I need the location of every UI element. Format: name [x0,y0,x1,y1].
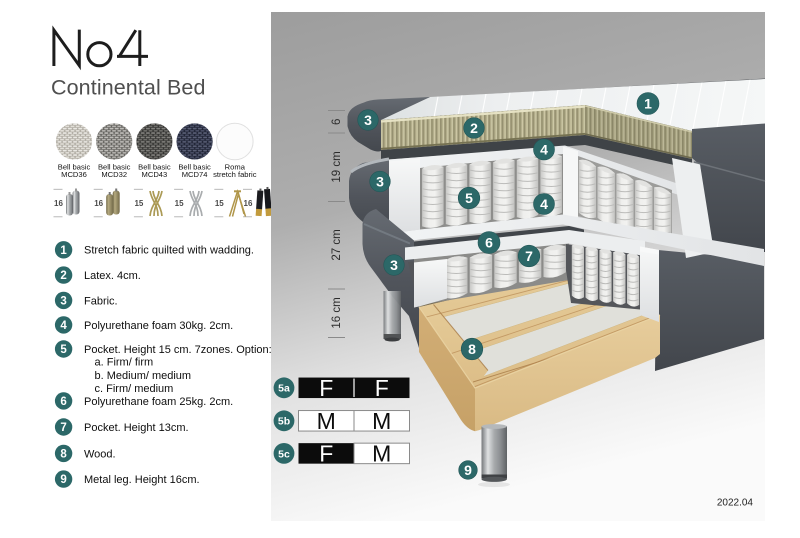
svg-text:Fabric.: Fabric. [84,295,118,307]
svg-text:Polyurethane foam 30kg. 2cm.: Polyurethane foam 30kg. 2cm. [84,320,233,332]
svg-text:Polyurethane foam 25kg. 2cm.: Polyurethane foam 25kg. 2cm. [84,396,233,408]
svg-text:9: 9 [60,474,66,486]
svg-text:16: 16 [244,199,253,208]
svg-text:1: 1 [60,245,67,257]
svg-text:F: F [319,440,333,466]
svg-text:1: 1 [644,96,652,112]
svg-text:stretch fabric: stretch fabric [213,170,257,179]
svg-text:9: 9 [464,462,472,478]
svg-text:a. Firm/ firm: a. Firm/ firm [95,356,154,368]
svg-text:Metal leg. Height 16cm.: Metal leg. Height 16cm. [84,474,200,486]
svg-text:5: 5 [60,344,67,356]
svg-text:MCD32: MCD32 [101,170,127,179]
svg-text:5c: 5c [278,448,290,460]
svg-text:19 cm: 19 cm [331,151,343,182]
svg-text:Continental Bed: Continental Bed [51,76,206,100]
svg-text:Latex. 4cm.: Latex. 4cm. [84,270,141,282]
svg-text:16: 16 [94,199,103,208]
svg-text:F: F [375,375,389,401]
svg-text:6: 6 [485,235,493,251]
svg-text:M: M [317,408,336,434]
svg-text:6: 6 [331,119,343,125]
svg-text:Pocket. Height 13cm.: Pocket. Height 13cm. [84,422,189,434]
svg-text:b. Medium/ medium: b. Medium/ medium [95,370,192,382]
svg-text:Stretch fabric quilted with wa: Stretch fabric quilted with wadding. [84,245,254,257]
svg-text:15: 15 [215,199,224,208]
svg-text:27 cm: 27 cm [331,229,343,260]
svg-text:5a: 5a [278,383,290,395]
svg-text:MCD36: MCD36 [61,170,87,179]
svg-text:Wood.: Wood. [84,448,116,460]
svg-text:3: 3 [376,174,384,190]
svg-text:2022.04: 2022.04 [717,498,754,509]
svg-text:16 cm: 16 cm [331,297,343,328]
svg-text:5: 5 [465,190,473,206]
svg-text:3: 3 [390,257,398,273]
svg-text:c. Firm/ medium: c. Firm/ medium [95,383,174,395]
svg-text:8: 8 [60,449,67,461]
svg-text:MCD43: MCD43 [142,170,168,179]
svg-text:16: 16 [54,199,63,208]
svg-text:4: 4 [540,196,548,212]
svg-text:15: 15 [175,199,184,208]
svg-text:M: M [372,440,391,466]
svg-text:F: F [319,375,333,401]
svg-text:4: 4 [540,142,548,158]
svg-text:8: 8 [468,341,476,357]
svg-text:7: 7 [525,248,533,264]
svg-text:15: 15 [134,199,143,208]
svg-text:2: 2 [60,270,66,282]
svg-text:3: 3 [60,296,66,308]
svg-text:M: M [372,408,391,434]
svg-text:5b: 5b [278,416,290,428]
svg-text:2: 2 [470,120,478,136]
svg-text:MCD74: MCD74 [182,170,208,179]
svg-text:Pocket. Height 15 cm. 7zones.: Pocket. Height 15 cm. 7zones. Option: [84,344,272,356]
svg-text:4: 4 [60,320,67,332]
svg-text:3: 3 [364,112,372,128]
svg-text:6: 6 [60,396,66,408]
svg-text:7: 7 [60,422,66,434]
